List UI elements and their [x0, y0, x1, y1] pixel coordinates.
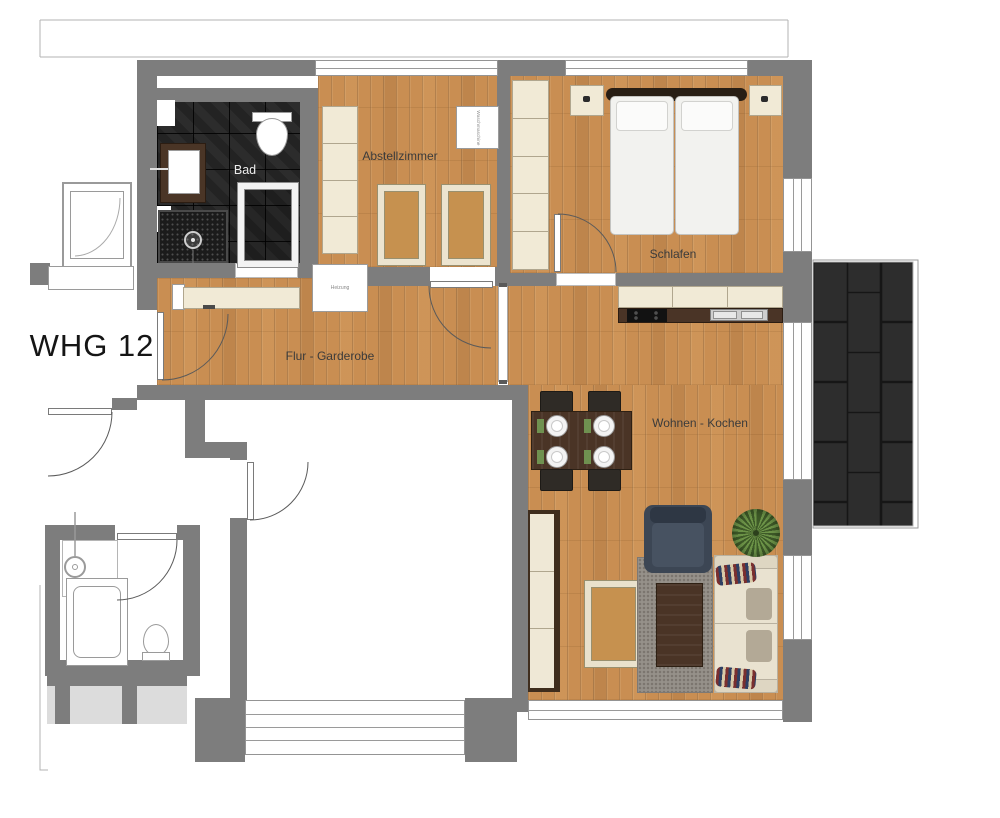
- sofa-cushion-a: [746, 588, 772, 620]
- pier-neighbor-window-right: [465, 698, 517, 762]
- coffee-table: [656, 583, 703, 667]
- neighbor-toilet-tank: [142, 652, 170, 661]
- living-tall-cabinet-front: [530, 514, 554, 688]
- heater-label: Heizung: [331, 285, 350, 290]
- wall-bedroom-bottom-a: [510, 273, 556, 286]
- kitchen-cabinet-divider-a: [672, 286, 673, 308]
- wall-right-a: [783, 60, 812, 178]
- bath-wall-niche-top: [157, 100, 175, 126]
- storage-cabinet-b: [442, 185, 490, 265]
- napkin-tl: [537, 419, 544, 433]
- room-label-wohnen: Wohnen - Kochen: [645, 416, 755, 430]
- bedroom-door-opening: [556, 273, 616, 286]
- building-outline-top: [40, 20, 788, 57]
- neighbor-entry-door-arc: [48, 412, 112, 476]
- passage-end-mark-bottom: [499, 380, 507, 384]
- hall-sideboard-mark: [203, 305, 215, 309]
- wall-left: [137, 76, 157, 310]
- pier-neighbor-window-left: [195, 698, 245, 762]
- bedroom-door-leaf: [554, 214, 561, 272]
- kitchen-sink-basin-a: [713, 311, 737, 319]
- wall-neighbor-stub: [185, 442, 247, 458]
- room-label-schlafen: Schlafen: [638, 247, 708, 261]
- wall-right-b: [783, 252, 812, 322]
- wall-right-c: [783, 480, 812, 555]
- sofa-cushion-b: [746, 630, 772, 662]
- bed-pillow-right: [681, 101, 733, 131]
- window-bedroom-top: [565, 60, 748, 76]
- living-chest: [585, 581, 642, 667]
- stairwell-window-sash: [70, 191, 124, 259]
- plant-center: [753, 530, 759, 536]
- apartment-title: WHG 12: [22, 328, 162, 364]
- dining-chair-br: [588, 469, 621, 491]
- neighbor-room-door-opening: [230, 460, 247, 518]
- shower-head-center: [191, 238, 195, 242]
- shower-enclosure: [238, 183, 298, 267]
- window-living-bottom: [528, 700, 783, 720]
- dining-chair-bl: [540, 469, 573, 491]
- neighbor-shower-head-center: [72, 564, 78, 570]
- washing-machine: Waschmaschine: [456, 106, 499, 149]
- sofa-pillow-top: [715, 562, 757, 586]
- kitchen-upper-cabinets: [618, 286, 783, 308]
- storage-door-leaf: [430, 281, 493, 288]
- room-label-flur: Flur - Garderobe: [270, 349, 390, 363]
- wall-neighbor-room-right: [512, 385, 528, 712]
- sofa-divider: [715, 623, 777, 624]
- window-bedroom-right: [783, 178, 812, 252]
- storage-shelf: [322, 106, 358, 254]
- wall-storage-bottom-a: [367, 267, 430, 286]
- passage-hall-living: [498, 286, 508, 382]
- bed-pillow-left: [616, 101, 668, 131]
- wall-neighbor-bath-left: [45, 525, 60, 676]
- napkin-tr: [584, 419, 591, 433]
- neighbor-entry-door-leaf: [48, 408, 112, 415]
- balcony-outline: [813, 260, 918, 528]
- dining-chair-tr: [588, 391, 621, 413]
- terrace-post-b: [122, 686, 137, 724]
- wall-right-d: [783, 640, 812, 722]
- plate-tr: [593, 415, 615, 437]
- plate-bl: [546, 446, 568, 468]
- nightstand-left-lamp: [583, 96, 590, 102]
- napkin-br: [584, 450, 591, 464]
- neighbor-room-door-arc: [250, 462, 308, 520]
- room-label-abstellzimmer: Abstellzimmer: [330, 149, 470, 163]
- wall-bath-right: [300, 88, 318, 278]
- room-label-bad: Bad: [215, 163, 275, 177]
- wall-bedroom-bottom-b: [616, 273, 783, 286]
- window-neighbor-room-bottom: [245, 700, 465, 755]
- storage-cabinet-a: [378, 185, 425, 265]
- wall-bath-bottom-left: [157, 263, 235, 278]
- wall-storage-bedroom: [497, 76, 510, 267]
- passage-end-mark-top: [499, 283, 507, 287]
- wall-neighbor-entry-top: [112, 398, 137, 410]
- window-storage-top: [315, 60, 498, 76]
- plate-br: [593, 446, 615, 468]
- window-living-right: [783, 555, 812, 640]
- kitchen-sink-basin-b: [741, 311, 763, 319]
- armchair-seat: [652, 523, 704, 567]
- armchair-back: [650, 507, 706, 523]
- hall-sideboard: [183, 287, 300, 309]
- cooktop: [627, 309, 667, 322]
- washing-machine-label: Waschmaschine: [475, 110, 480, 145]
- terrace-edge: [47, 676, 187, 686]
- balcony-tiles: [813, 262, 913, 526]
- stairwell-window-sill: [48, 266, 134, 290]
- bath-sink: [168, 150, 200, 194]
- nightstand-right-lamp: [761, 96, 768, 102]
- bedroom-wardrobe: [512, 80, 549, 270]
- heater-unit: Heizung: [312, 264, 368, 312]
- wall-stairwell-stub: [30, 263, 50, 285]
- neighbor-bathtub-inner: [73, 586, 121, 658]
- wall-neighbor-room-left-upper: [185, 398, 205, 445]
- floor-plan: Waschmaschine Heizung: [0, 0, 1000, 818]
- bath-faucet-icon: [150, 168, 168, 170]
- kitchen-cabinet-divider-b: [727, 286, 728, 308]
- sofa-pillow-bottom: [715, 666, 757, 689]
- balcony-door: [783, 322, 812, 480]
- wall-bath-top: [157, 88, 310, 102]
- plate-tl: [546, 415, 568, 437]
- neighbor-room-door-leaf: [247, 462, 254, 520]
- neighbor-bath-door-leaf: [117, 533, 177, 540]
- napkin-bl: [537, 450, 544, 464]
- terrace-post-a: [55, 686, 70, 724]
- wall-neighbor-bath-right: [183, 525, 200, 676]
- dining-chair-tl: [540, 391, 573, 413]
